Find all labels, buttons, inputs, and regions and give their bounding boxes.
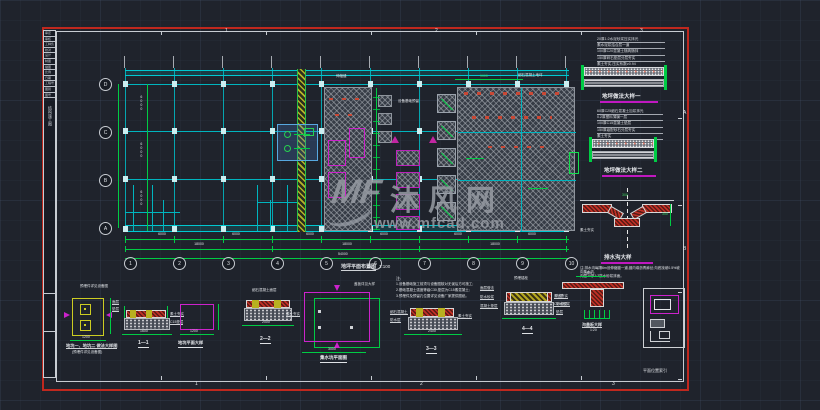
leader-label-equipment: 设备基础预留 xyxy=(398,99,419,103)
keyplan-inner-rect xyxy=(654,299,671,310)
drain-width-dim: 300 xyxy=(622,193,628,197)
dimension-line xyxy=(125,239,569,240)
foundation-pad xyxy=(437,121,456,140)
dimension-value: 1600 xyxy=(140,329,148,333)
drain-trough xyxy=(614,218,640,227)
note-line: 1.设备基础施工前须与设备图核对无误后方可施工; xyxy=(396,282,473,286)
leader-label: 防水层 xyxy=(390,318,401,323)
partition-wall xyxy=(133,185,134,231)
highlight-rect xyxy=(569,152,579,174)
hatch-accent xyxy=(472,116,552,119)
equipment-pad xyxy=(378,113,392,125)
sump-mark xyxy=(318,310,321,313)
slab-insert xyxy=(416,308,423,317)
leader-label: 垫层 xyxy=(556,310,563,315)
detail-channel-cover: 400 沟壁 防水砂浆 垫层 沟盖板大样 1:20 xyxy=(556,272,632,334)
section-title: 2—2 xyxy=(260,336,271,344)
axis-bubble-bottom: 4 xyxy=(271,257,284,270)
pit-rect xyxy=(180,304,214,330)
zone-number-top-1: 1 xyxy=(225,28,228,34)
dimension-line xyxy=(302,352,366,353)
dimension-line-vertical xyxy=(118,84,119,228)
plan-title: 地坪平面布置图 xyxy=(341,264,376,271)
leader-label: 防水砂浆 xyxy=(480,295,494,300)
axis-bubble-left: D xyxy=(99,78,112,91)
titleblock-row: 图号 xyxy=(44,93,55,99)
sump-mark xyxy=(350,326,353,329)
leader-label-joint: 伸缩缝 xyxy=(336,74,347,78)
axis-bubble-bottom: 2 xyxy=(173,257,186,270)
section-title: 1—1 xyxy=(138,340,149,348)
equipment-pad-magenta xyxy=(396,194,420,210)
dimension-line xyxy=(70,340,106,341)
drain-detail: 300 300 素土夯实 xyxy=(580,186,676,252)
dimension-line-top-right xyxy=(455,79,523,80)
equipment-pad-magenta xyxy=(396,216,420,230)
section-title: 3—3 xyxy=(426,346,437,354)
dimension-mark xyxy=(528,188,548,189)
hatch-accent xyxy=(329,98,367,100)
dimension-value: 1200 xyxy=(190,329,198,333)
detail-title-line2: (预埋件详见设备图) xyxy=(72,350,102,354)
keyplan-wing-rect xyxy=(659,331,670,339)
leader-label: 防水砂浆 xyxy=(556,302,570,307)
grid-line-overlay xyxy=(458,132,576,133)
dimension-value-left: 6000 xyxy=(139,95,143,111)
zone-number-top-3: 3 xyxy=(640,28,643,34)
titleblock-divider xyxy=(44,293,55,294)
dimension-line xyxy=(125,249,569,250)
leader-label: 面层做法 xyxy=(480,286,494,291)
zone-number-bottom-2: 2 xyxy=(420,381,423,387)
border-ticks-top xyxy=(56,31,682,35)
dimension-value: 9000 xyxy=(480,74,488,78)
axis-bubble-bottom: 5 xyxy=(320,257,333,270)
partition-wall xyxy=(152,185,153,231)
hatched-floor-region-left xyxy=(324,87,372,231)
band-end-cap xyxy=(547,292,552,302)
axis-bubble-bottom: 7 xyxy=(418,257,431,270)
section-marker-triangle xyxy=(391,136,399,143)
dimension-row-2: 180001800018000 xyxy=(125,242,569,246)
titleblock-divider xyxy=(44,331,55,332)
axis-bubble-left: A xyxy=(99,222,112,235)
dimension-row-1: 600060006000600060006000 xyxy=(125,232,569,236)
fixture-circle xyxy=(284,131,291,138)
leader-label: 细石混凝土面层 xyxy=(252,288,277,292)
zone-letter-right-b: B xyxy=(683,246,686,252)
pit-insert xyxy=(80,304,91,315)
band-layer-concrete xyxy=(592,139,654,148)
axis-bubble-bottom: 8 xyxy=(467,257,480,270)
leader-label: 盖板详见大样 xyxy=(354,282,375,286)
slab-band-yellow xyxy=(510,292,548,302)
titleblock-strip: 审定 审核 工种负责 校对 设计 制图 描图 比例 日期 工程号 图别 图号 结… xyxy=(43,30,56,378)
equipment-pad-magenta xyxy=(396,172,420,188)
slab-insert xyxy=(438,308,445,317)
leader-label: 沟壁 xyxy=(556,294,563,299)
keyplan-label: 平面位置索引 xyxy=(643,368,667,373)
dimension-line-vertical xyxy=(147,84,148,231)
zone-letter-right-a: A xyxy=(683,110,686,116)
foundation-pad xyxy=(437,94,456,113)
title-underline-magenta xyxy=(600,101,658,103)
zone-number-bottom-1: 1 xyxy=(195,381,198,387)
grid-line-overlay xyxy=(458,180,576,181)
notes-header: 注: xyxy=(396,276,401,281)
section-arrow xyxy=(64,312,70,318)
leader-label: 细石混凝土 xyxy=(390,310,408,315)
leader-label: 预埋件详见设备图 xyxy=(80,284,108,288)
dimension-line xyxy=(180,334,214,335)
dimension-line xyxy=(502,318,556,319)
slab-insert xyxy=(130,310,136,318)
dimension-line xyxy=(218,304,219,330)
dimension-value: 400 xyxy=(586,271,592,275)
detail-title-line2: 1:20 xyxy=(590,328,597,332)
drain-dim-line xyxy=(580,200,674,201)
dimension-value: 1200 xyxy=(82,335,90,339)
dimension-value: 2000 xyxy=(262,320,270,324)
slab-insert xyxy=(146,310,152,318)
band-layer-concrete xyxy=(584,67,664,76)
sump-mark xyxy=(318,326,321,329)
titleblock-label: 结构施工图 xyxy=(47,106,53,176)
hatch-accent xyxy=(335,114,361,116)
detail-title-line1: 地坑一、地坑二 做法大样图 xyxy=(66,343,117,349)
dimension-total-value: 54000 xyxy=(338,252,348,256)
detail-section-2: 细石混凝土面层 2000 素土夯实 2—2 xyxy=(236,288,298,352)
channel-stem xyxy=(590,289,604,307)
band-layer-base xyxy=(592,151,654,159)
column-grid-extension-ticks xyxy=(124,56,570,68)
partition-wall xyxy=(125,212,180,213)
drain-label-left: 素土夯实 xyxy=(580,228,594,232)
selected-region-panel[interactable] xyxy=(277,124,318,161)
dimension-value: 2400 xyxy=(428,329,436,333)
axis-bubble-bottom: 1 xyxy=(124,257,137,270)
title-underline-magenta xyxy=(602,175,656,177)
dimension-mark xyxy=(466,158,484,159)
leader-label: 面层 xyxy=(112,300,119,305)
axis-bubble-bottom: 9 xyxy=(516,257,529,270)
partition-wall xyxy=(287,185,288,231)
dimension-value-left: 6000 xyxy=(139,190,143,206)
equipment-pad-magenta xyxy=(396,150,420,166)
drain-depth-dim-line xyxy=(670,204,671,226)
dimension-line xyxy=(110,298,111,334)
title-underline-magenta xyxy=(601,262,653,264)
foundation-pad xyxy=(437,202,456,221)
detail-section-1: 面层 垫层 1600 素土夯实 C15垫层 1—1 xyxy=(112,294,178,350)
rebar-comb xyxy=(584,310,610,319)
note-line: 2.基础混凝土强度等级C30,垫层为C15素混凝土; xyxy=(396,288,470,292)
section-title: 4—4 xyxy=(522,326,533,334)
band-layer-base xyxy=(584,79,664,87)
slab-insert xyxy=(252,300,259,308)
hatch-accent xyxy=(488,146,548,148)
band-end-bar xyxy=(654,137,657,162)
pit-outline xyxy=(349,128,365,158)
plan-title-group: 地坪平面布置图 1:100 xyxy=(341,264,390,271)
axis-bubble-left: C xyxy=(99,126,112,139)
fixture-line xyxy=(294,148,310,149)
keyplan-box xyxy=(643,288,685,348)
dimension-value-left: 6000 xyxy=(139,142,143,158)
dimension-line xyxy=(576,276,606,277)
partition-wall xyxy=(257,185,258,231)
dimension-ticks xyxy=(373,88,380,230)
channel-top-bar xyxy=(562,282,624,289)
leader-label: 垫层 xyxy=(112,307,119,312)
sump-magenta-rect xyxy=(304,292,370,342)
axis-bubble-bottom: 3 xyxy=(222,257,235,270)
partition-wall xyxy=(163,200,164,231)
detail-pit-plan: 1200 地坑平面大样 xyxy=(176,300,222,348)
axis-bubble-left: B xyxy=(99,174,112,187)
pit-outline xyxy=(328,140,346,166)
leader-label-floor: 细石混凝土地坪 xyxy=(518,73,543,77)
detail-section-3: 注: 1.设备基础施工前须与设备图核对无误后方可施工; 2.基础混凝土强度等级C… xyxy=(390,276,482,360)
drain-title: 排水沟大样 xyxy=(604,253,632,261)
pit-outline xyxy=(328,172,346,198)
fixture-box xyxy=(304,128,314,136)
keyplan-small-rect xyxy=(650,319,665,328)
grid-line-overlay xyxy=(521,88,522,232)
leader-label: 混凝土垫层 xyxy=(480,304,498,309)
pit-insert xyxy=(80,320,91,331)
axis-bubble-bottom: 10 xyxy=(565,257,578,270)
band-end-cap xyxy=(506,292,511,302)
section-title: 集水坑平面图 xyxy=(320,355,347,363)
hatch-accent xyxy=(464,92,568,95)
equipment-pad xyxy=(378,131,392,143)
slab-insert xyxy=(274,300,281,308)
dimension-value: 3000 xyxy=(328,347,336,351)
equipment-pad xyxy=(378,95,392,107)
partition-wall xyxy=(270,200,271,231)
leader-label: 素土夯实 xyxy=(458,314,472,319)
plan-scale: 1:100 xyxy=(379,264,390,270)
dimension-line xyxy=(122,334,172,335)
floor-buildup-notes-1: 20厚1:2水泥砂浆压实抹光素水泥浆结合层一道100厚C20混凝土随捣随抹150… xyxy=(597,37,665,68)
floor-buildup-band-2 xyxy=(592,139,654,160)
hatched-floor-region-right xyxy=(457,87,575,231)
plan-top-beam xyxy=(125,70,569,76)
flow-arrow xyxy=(334,285,340,291)
section-title: 地坑平面大样 xyxy=(178,340,203,348)
floor-buildup-band-1 xyxy=(584,67,664,88)
drain-depth-dim: 300 xyxy=(662,212,668,216)
bedding-layer xyxy=(504,302,554,315)
border-ticks-bottom xyxy=(56,376,682,380)
keyplan: 平面位置索引 xyxy=(643,286,685,378)
dimension-line-total xyxy=(125,258,569,259)
foundation-pad xyxy=(437,148,456,167)
leader-label: 预埋锚栓 xyxy=(514,276,528,280)
zone-number-bottom-3: 3 xyxy=(612,381,615,387)
floor-buildup-notes-2: 60厚C25细石混凝土加浆抹光0.2厚塑料薄膜一层100厚C15混凝土垫层150… xyxy=(597,109,663,140)
zone-number-top-2: 2 xyxy=(435,28,438,34)
dimension-line xyxy=(242,325,294,326)
band-end-bar xyxy=(664,65,667,90)
section-marker-triangle xyxy=(429,136,437,143)
note-line: 3.预埋件及预留孔位置详见设备厂家提供图纸。 xyxy=(396,294,469,298)
detail-title-buildup-1: 地坪做法大样一 xyxy=(602,92,641,100)
fixture-circle xyxy=(284,145,291,152)
detail-sump-plan: 盖板详见大样 3000 集水坑平面图 xyxy=(298,282,384,362)
dimension-line xyxy=(404,334,462,335)
detail-title-buildup-2: 地坪做法大样二 xyxy=(604,166,643,174)
drawing-canvas[interactable]: 1 2 3 1 2 3 A B 审定 审核 工种负责 校对 设计 制图 描图 比… xyxy=(0,0,820,410)
foundation-pad xyxy=(437,175,456,194)
